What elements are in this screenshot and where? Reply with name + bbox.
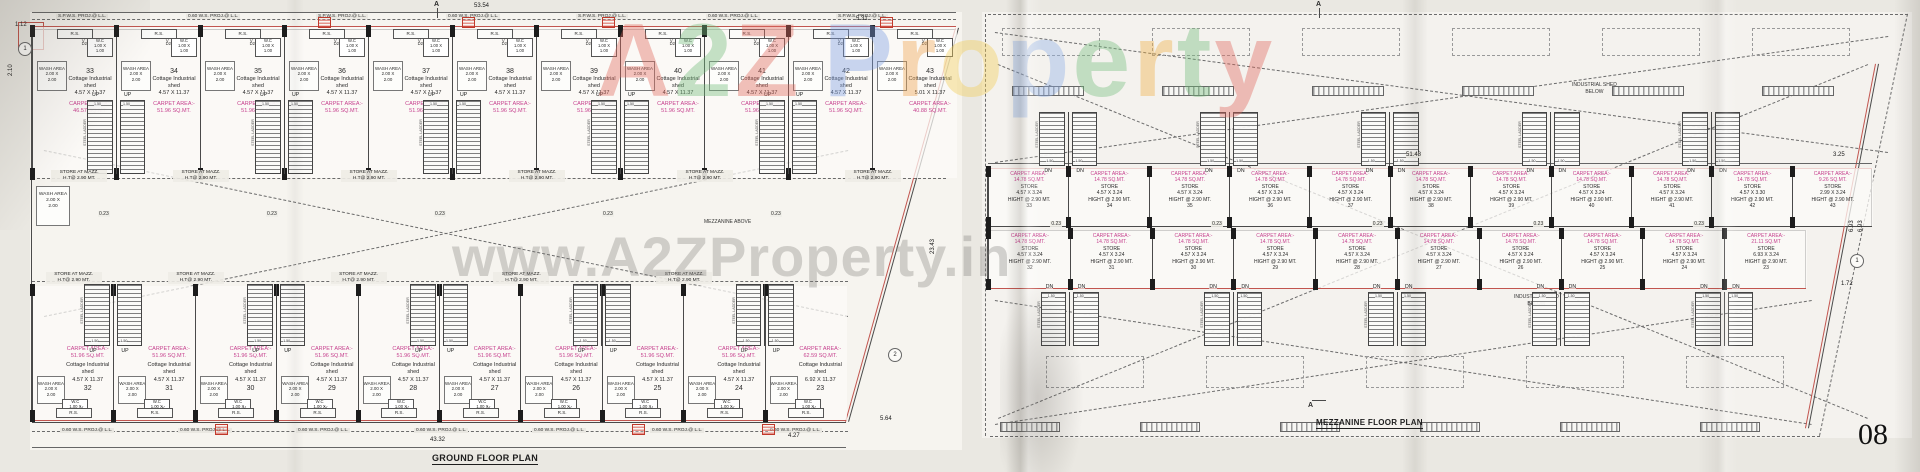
stair-width-dim: 1.50	[766, 102, 773, 106]
stair-direction-label: UP	[92, 92, 99, 98]
grid-marker-2: 2	[888, 348, 902, 362]
stair-width-dim: 1.50	[262, 102, 269, 106]
mezzanine-store-cell: CARPET AREA:- 14.78 SQ.MT. STORE 4.57 X …	[1631, 168, 1712, 226]
stair-flight	[591, 100, 617, 174]
stair-width-dim: 1.50	[446, 339, 453, 343]
wash-size: 2.00	[794, 77, 822, 82]
ventilator-mark: V	[813, 405, 816, 410]
stair-width-dim: 1.50	[291, 102, 298, 106]
dashed-line	[32, 178, 946, 179]
unit-type: shed	[796, 369, 845, 376]
steel-ladder-label: STEEL LADDER	[243, 297, 247, 324]
wash-area-box: WASH AREA 2.00 X 2.00	[205, 61, 235, 91]
stair-width-dim: 1.50	[580, 339, 587, 343]
stair-direction-label: DN	[1559, 168, 1567, 174]
stair-divider	[116, 100, 117, 174]
store-text: CARPET AREA:- 14.78 SQ.MT. STORE 4.57 X …	[1153, 233, 1235, 271]
dim-total-bottom: 43.32	[430, 437, 445, 443]
stair-direction-label: DN	[1700, 284, 1708, 290]
unit-type: Cottage Industrial	[226, 362, 275, 369]
carpet-area-label: CARPET AREA:-	[389, 346, 438, 353]
stair-direction-label: DN	[1044, 168, 1052, 174]
stair-flight	[1522, 112, 1548, 166]
ventilator-mark: V	[406, 405, 409, 410]
unit-number: 27	[1398, 265, 1480, 271]
steel-ladder-label: STEEL LADDER	[1691, 301, 1695, 328]
stair-direction-label: DN	[1209, 284, 1217, 290]
unit-type: Cottage Industrial	[821, 76, 871, 83]
unit-number: 43	[1793, 203, 1873, 209]
roof-outline-dashed	[1752, 28, 1850, 56]
unit-text: 42 Cottage Industrial shed 4.57 X 11.37 …	[821, 67, 871, 115]
roof-outline-dashed	[1302, 28, 1400, 56]
wash-area-box: WASH AREA 2.00 X 2.00	[281, 376, 309, 404]
unit-type: Cottage Industrial	[796, 362, 845, 369]
wash-size: 2.00	[38, 77, 66, 82]
staircase	[1522, 112, 1580, 166]
unit-text: 43 Cottage Industrial shed 5.01 X 11.37 …	[905, 67, 955, 115]
unit-type: shed	[226, 369, 275, 376]
mezzanine-store-cell: CARPET AREA:- 14.78 SQ.MT. STORE 4.57 X …	[1152, 230, 1235, 288]
stair-width-dim: 1.50	[1529, 159, 1536, 163]
carpet-area-value: 51.96 SQ.MT.	[317, 108, 367, 115]
unit-text: 38 Cottage Industrial shed 4.57 X 11.37 …	[485, 67, 535, 115]
wash-area-box: WASH AREA 2.00 X 2.00	[541, 61, 571, 91]
stair-width-dim: 1.50	[1702, 294, 1709, 298]
unit-number: 37	[1310, 203, 1390, 209]
stair-direction-label: UP	[252, 348, 259, 354]
unit-size: 4.57 X 11.37	[470, 377, 519, 384]
stair-flight	[280, 284, 306, 346]
mezzanine-store-cell: CARPET AREA:- 14.78 SQ.MT. STORE 4.57 X …	[1309, 168, 1390, 226]
stair-width-dim: 1.50	[1397, 159, 1404, 163]
stair-direction-label: DN	[1076, 168, 1084, 174]
column-gap-dim: 0.23	[434, 211, 446, 217]
wash-area-box: WASH AREA 2.00 X 2.00	[457, 61, 487, 91]
unit-type: Cottage Industrial	[485, 76, 535, 83]
carpet-area-value: 51.96 SQ.MT.	[551, 353, 600, 360]
steel-ladder-label: STEEL LADDER	[1364, 301, 1368, 328]
stair-flight	[423, 100, 449, 174]
wash-area-box: WASH AREA 2.00 X 2.00	[37, 376, 65, 404]
note-line: BELOW	[1572, 89, 1617, 96]
mezzanine-store-cell: CARPET AREA:- 14.78 SQ.MT. STORE 4.57 X …	[1149, 168, 1230, 226]
mezzanine-store-cell: CARPET AREA:- 14.78 SQ.MT. STORE 4.57 X …	[1711, 168, 1792, 226]
stair-divider	[1711, 112, 1712, 166]
unit-type: Cottage Industrial	[389, 362, 438, 369]
wash-area-box: WASH AREA 2.00 X 2.00	[625, 61, 655, 91]
wash-size: 2.00	[445, 392, 471, 397]
staircase	[759, 100, 817, 174]
stair-divider	[284, 100, 285, 174]
wash-area-box: WASH AREA 2.00 X 2.00	[121, 61, 151, 91]
stair-direction-label: UP	[460, 92, 467, 98]
unit-type: shed	[144, 369, 193, 376]
unit-number: 36	[1230, 203, 1310, 209]
red-stamp-icon	[215, 424, 228, 435]
wash-size: 2.00	[771, 392, 797, 397]
stair-width-dim: 1.50	[1689, 159, 1696, 163]
unit-text: CARPET AREA:- 51.96 SQ.MT. Cottage Indus…	[551, 346, 600, 393]
wash-area-box: WASH AREA 2.00 X 2.00	[363, 376, 391, 404]
stair-direction-label: UP	[578, 348, 585, 354]
stair-flight	[768, 284, 794, 346]
dim-mezz-total: 51.48	[1406, 152, 1421, 158]
carpet-area-value: 51.96 SQ.MT.	[389, 353, 438, 360]
unit-text: CARPET AREA:- 62.59 SQ.MT. Cottage Indus…	[796, 346, 845, 393]
unit-text: CARPET AREA:- 51.96 SQ.MT. Cottage Indus…	[226, 346, 275, 393]
stair-flight	[1072, 112, 1098, 166]
unit-type: Cottage Industrial	[233, 76, 283, 83]
unit-type: Cottage Industrial	[470, 362, 519, 369]
store-text: CARPET AREA:- 14.78 SQ.MT. STORE 4.57 X …	[1391, 171, 1471, 209]
unit-type: shed	[233, 83, 283, 90]
rolling-shutter-label: R.S.	[544, 408, 580, 418]
unit-number: 29	[1234, 265, 1316, 271]
unit-type: shed	[737, 83, 787, 90]
ventilator-mark: V	[487, 405, 490, 410]
unit-size: 4.57 X 11.37	[144, 377, 193, 384]
stair-flight	[255, 100, 281, 174]
wc-box: W.C 1.00 X 1.00	[255, 38, 281, 57]
stair-flight	[1695, 292, 1721, 346]
stair-flight	[117, 284, 143, 346]
unit-number: 31	[1071, 265, 1153, 271]
wc-box: W.C 1.00 X 1.00	[339, 38, 365, 57]
mezzanine-store-cell: CARPET AREA:- 14.78 SQ.MT. STORE 4.57 X …	[1479, 230, 1562, 288]
stair-direction-label: DN	[1687, 168, 1695, 174]
unit-type: shed	[149, 83, 199, 90]
store-text: CARPET AREA:- 14.78 SQ.MT. STORE 4.57 X …	[989, 233, 1071, 271]
unit-number: 35	[1150, 203, 1230, 209]
stair-divider	[1560, 292, 1561, 346]
edge-projection-label: 0.60 W.S. PROJ.@ L.L.	[532, 428, 586, 433]
mezzanine-store-cell: CARPET AREA:- 14.78 SQ.MT. STORE 4.57 X …	[1229, 168, 1310, 226]
carpet-area-value: 51.96 SQ.MT.	[63, 353, 112, 360]
store-text: CARPET AREA:- 14.78 SQ.MT. STORE 4.57 X …	[989, 171, 1069, 209]
red-stamp-icon	[602, 17, 615, 28]
dim-top-right: 5.31	[856, 16, 868, 22]
unit-number: 40	[653, 67, 703, 76]
unit-number: 33	[989, 203, 1069, 209]
ground-floor-unit-cell: R.S. V W.C 1.00 X 1.00 D2 WASH AREA 2.00…	[872, 27, 957, 178]
stair-direction-label: UP	[764, 92, 771, 98]
stair-flight	[624, 100, 650, 174]
steel-ladder-label: STEEL LADDER	[1678, 121, 1682, 148]
unit-size: 4.57 X 11.37	[714, 377, 763, 384]
note-line: H.T@ 2.90 MT.	[678, 176, 732, 182]
unit-size: 4.57 X 11.37	[633, 377, 682, 384]
staircase	[410, 284, 468, 346]
red-stamp-icon	[318, 17, 331, 28]
dim-right-height: 23.43	[930, 239, 936, 254]
stair-width-dim: 1.50	[91, 339, 98, 343]
store-text: CARPET AREA:- 14.78 SQ.MT. STORE 4.57 X …	[1480, 233, 1562, 271]
wash-size: 2.00	[206, 77, 234, 82]
louver-strip	[1312, 86, 1384, 96]
store-text: CARPET AREA:- 14.78 SQ.MT. STORE 4.57 X …	[1230, 171, 1310, 209]
wash-area-box: WASH AREA 2.00 X 2.00	[37, 61, 67, 91]
stair-flight	[1728, 292, 1754, 346]
staircase	[423, 100, 481, 174]
note-line: H.T@ 2.90 MT.	[657, 278, 711, 284]
stair-flight	[1564, 292, 1590, 346]
dim-total-width: 53.54	[474, 3, 489, 9]
stair-width-dim: 1.50	[120, 339, 127, 343]
stair-width-dim: 1.50	[123, 102, 130, 106]
unit-number: 39	[569, 67, 619, 76]
store-at-mezzanine-note: STORE AT MAZZ.H.T@ 2.90 MT.	[173, 170, 229, 182]
carpet-area-value: 51.96 SQ.MT.	[144, 353, 193, 360]
unit-text: 36 Cottage Industrial shed 4.57 X 11.37 …	[317, 67, 367, 115]
carpet-area-value: 51.96 SQ.MT.	[307, 353, 356, 360]
stair-direction-label: DN	[1569, 284, 1577, 290]
steel-ladder-label: STEEL LADDER	[1518, 121, 1522, 148]
stair-flight	[1715, 112, 1741, 166]
unit-number: 31	[144, 384, 193, 393]
staircase	[84, 284, 142, 346]
store-text: CARPET AREA:- 14.78 SQ.MT. STORE 4.57 X …	[1552, 171, 1632, 209]
unit-text: CARPET AREA:- 51.96 SQ.MT. Cottage Indus…	[307, 346, 356, 393]
stair-direction-label: DN	[1405, 284, 1413, 290]
staircase	[1532, 292, 1590, 346]
unit-number: 34	[1069, 203, 1149, 209]
red-stamp-icon	[762, 424, 775, 435]
column-gap-dim: 0.23	[1372, 221, 1384, 227]
wash-area-box: WASH AREA 2.00 X 2.00	[770, 376, 798, 404]
column-gap-dim: 0.23	[1050, 221, 1062, 227]
dim-mezz-right-top: 3.25	[1833, 152, 1845, 158]
unit-number: 26	[551, 384, 600, 393]
store-text: CARPET AREA:- 14.78 SQ.MT. STORE 4.57 X …	[1712, 171, 1792, 209]
section-marker-a: A	[434, 1, 439, 8]
unit-type: Cottage Industrial	[551, 362, 600, 369]
stair-width-dim: 1.50	[1240, 294, 1247, 298]
carpet-area-value: 51.96 SQ.MT.	[226, 353, 275, 360]
unit-text: CARPET AREA:- 51.96 SQ.MT. Cottage Indus…	[633, 346, 682, 393]
column-gap-dim: 0.23	[266, 211, 278, 217]
unit-type: Cottage Industrial	[65, 76, 115, 83]
wc-box: W.C 1.00 X 1.00	[927, 38, 953, 57]
stair-flight	[1237, 292, 1263, 346]
staircase	[1039, 112, 1097, 166]
unit-type: shed	[307, 369, 356, 376]
edge-projection-label: 0.60 W.S. PROJ.@ L.L.	[706, 14, 760, 19]
mezzanine-store-cell: CARPET AREA:- 14.78 SQ.MT. STORE 4.57 X …	[1068, 168, 1149, 226]
stair-flight	[288, 100, 314, 174]
wash-size: 2.00	[626, 77, 654, 82]
stair-width-dim: 1.50	[598, 102, 605, 106]
stair-direction-label: UP	[796, 92, 803, 98]
unit-size: 4.57 X 11.37	[65, 90, 115, 97]
dim-mezz-right-h2: 6.93	[1858, 220, 1864, 232]
wash-area-box: WASH AREA 2.00 X 2.00	[525, 376, 553, 404]
staircase	[255, 100, 313, 174]
stair-width-dim: 1.50	[609, 339, 616, 343]
staircase	[1204, 292, 1262, 346]
carpet-area-value: 51.96 SQ.MT.	[149, 108, 199, 115]
note-line: H.T@ 2.90 MT.	[494, 278, 548, 284]
stair-direction-label: DN	[1732, 284, 1740, 290]
wash-size: 2.00	[878, 77, 906, 82]
stair-width-dim: 1.50	[94, 102, 101, 106]
unit-size: 4.57 X 11.37	[233, 90, 283, 97]
unit-size: 6.92 X 11.37	[796, 377, 845, 384]
stair-divider	[620, 100, 621, 174]
edge-projection-label: 0.60 W.S. PROJ.@ L.L.	[60, 428, 114, 433]
unit-number: 40	[1552, 203, 1632, 209]
staircase	[1682, 112, 1740, 166]
louver-strip	[1012, 86, 1084, 96]
carpet-area-value: 51.96 SQ.MT.	[821, 108, 871, 115]
rolling-shutter-label: R.S.	[463, 408, 499, 418]
wash-area-box: WASH AREA 2.00 X 2.00	[200, 376, 228, 404]
mezzanine-store-cell: CARPET AREA:- 14.78 SQ.MT. STORE 4.57 X …	[1070, 230, 1153, 288]
wash-size: 2.00	[542, 77, 570, 82]
stair-direction-label: DN	[1237, 168, 1245, 174]
wc-size: 1.00	[928, 49, 952, 54]
rolling-shutter-label: R.S.	[707, 408, 743, 418]
carpet-area-label: CARPET AREA:-	[821, 101, 871, 108]
unit-size: 4.57 X 11.37	[63, 377, 112, 384]
roof-outline-dashed	[1686, 356, 1784, 388]
wc-size: 1.00	[760, 49, 784, 54]
dim-bottom-offset: 4.27	[788, 433, 800, 439]
wc-box: W.C 1.00 X 1.00	[171, 38, 197, 57]
stair-width-dim: 1.50	[1375, 294, 1382, 298]
store-at-mezzanine-note: STORE AT MAZZ.H.T@ 2.90 MT.	[493, 272, 549, 284]
wash-area-box: WASH AREA 2.00 X 2.00	[877, 61, 907, 91]
ventilator-mark: V	[324, 405, 327, 410]
dashed-line	[990, 436, 1820, 437]
steel-ladder-label: STEEL LADDER	[732, 297, 736, 324]
steel-ladder-label: STEEL LADDER	[83, 119, 87, 146]
wash-size: 2.00	[290, 77, 318, 82]
stair-direction-label: DN	[1205, 168, 1213, 174]
carpet-area-label: CARPET AREA:-	[307, 346, 356, 353]
edge-projection-label: 0.60 W.S. PROJ.@ L.L.	[650, 428, 704, 433]
ventilator-mark: V	[80, 405, 83, 410]
store-at-mezzanine-note: STORE AT MAZZ.H.T@ 2.90 MT.	[51, 170, 107, 182]
carpet-area-value: 51.96 SQ.MT.	[653, 108, 703, 115]
stair-flight	[573, 284, 599, 346]
door-label: D2	[166, 41, 171, 46]
staircase	[1041, 292, 1099, 346]
stair-flight	[605, 284, 631, 346]
unit-number: 30	[1153, 265, 1235, 271]
store-text: CARPET AREA:- 14.78 SQ.MT. STORE 4.57 X …	[1316, 233, 1398, 271]
unit-number: 41	[1632, 203, 1712, 209]
wash-area-box: WASH AREA 2.00 X 2.00	[118, 376, 146, 404]
unit-type: shed	[821, 83, 871, 90]
unit-type: Cottage Industrial	[317, 76, 367, 83]
stair-direction-label: UP	[292, 92, 299, 98]
stair-width-dim: 1.50	[1731, 294, 1738, 298]
unit-type: shed	[389, 369, 438, 376]
section-marker-a: A	[1308, 402, 1313, 409]
note-line: H.T@ 2.90 MT.	[510, 176, 564, 182]
wash-area-box: WASH AREA 2.00 X 2.00	[688, 376, 716, 404]
door-label: D2	[418, 41, 423, 46]
unit-type: shed	[63, 369, 112, 376]
wash-area-box: WASH AREA 2.00 X 2.00	[289, 61, 319, 91]
wc-size: 1.00	[592, 49, 616, 54]
stair-flight	[410, 284, 436, 346]
steel-ladder-label: STEEL LADDER	[755, 119, 759, 146]
stair-direction-label: UP	[89, 348, 96, 354]
unit-size: 4.57 X 11.37	[551, 377, 600, 384]
unit-number: 28	[1316, 265, 1398, 271]
stair-flight	[1204, 292, 1230, 346]
staircase	[1695, 292, 1753, 346]
unit-text: CARPET AREA:- 51.96 SQ.MT. Cottage Indus…	[470, 346, 519, 393]
note-line: H.T@ 2.90 MT.	[52, 176, 106, 182]
industrial-shed-below-note: INDUSTRIAL SHED BELOW	[1572, 82, 1617, 95]
section-marker-tick	[437, 8, 438, 18]
steel-ladder-label: STEEL LADDER	[587, 119, 591, 146]
wash-size: 2.00	[689, 392, 715, 397]
unit-type: shed	[317, 83, 367, 90]
ground-floor-plan-title: GROUND FLOOR PLAN	[432, 453, 538, 465]
store-at-mezzanine-note: STORE AT MAZZ.H.T@ 2.90 MT.	[677, 170, 733, 182]
stair-flight	[1554, 112, 1580, 166]
unit-number: 23	[796, 384, 845, 393]
mezzanine-store-cell: CARPET AREA:- 21.11 SQ.MT STORE 6.93 X 3…	[1724, 230, 1807, 288]
unit-number: 32	[989, 265, 1071, 271]
store-text: CARPET AREA:- 21.11 SQ.MT STORE 6.93 X 3…	[1725, 233, 1807, 271]
door-label: D2	[922, 41, 927, 46]
stair-divider	[1068, 112, 1069, 166]
staircase	[591, 100, 649, 174]
carpet-area-label: CARPET AREA:-	[226, 346, 275, 353]
stair-width-dim: 1.50	[1718, 159, 1725, 163]
ventilator-mark: V	[650, 405, 653, 410]
stair-width-dim: 1.50	[283, 339, 290, 343]
steel-ladder-label: STEEL LADDER	[80, 297, 84, 324]
red-stamp-icon	[880, 17, 893, 28]
grid-marker-1: 1	[18, 42, 32, 56]
unit-type: Cottage Industrial	[905, 76, 955, 83]
red-stamp-icon	[632, 424, 645, 435]
stair-direction-label: UP	[773, 348, 780, 354]
column-gap-dim: 0.23	[1693, 221, 1705, 227]
stair-direction-label: UP	[284, 348, 291, 354]
louver-strip	[1162, 86, 1234, 96]
unit-size: 4.57 X 11.37	[226, 377, 275, 384]
wc-box: W.C 1.00 X 1.00	[87, 38, 113, 57]
carpet-area-value: 51.96 SQ.MT.	[633, 353, 682, 360]
carpet-area-label: CARPET AREA:-	[317, 101, 367, 108]
stair-width-dim: 1.50	[1368, 159, 1375, 163]
mezzanine-store-cell: CARPET AREA:- 14.78 SQ.MT. STORE 4.57 X …	[1642, 230, 1725, 288]
stair-divider	[1389, 112, 1390, 166]
roof-outline-dashed	[1046, 356, 1144, 388]
carpet-area-label: CARPET AREA:-	[485, 101, 535, 108]
unit-type: Cottage Industrial	[633, 362, 682, 369]
store-at-mezzanine-note: STORE AT MAZZ.H.T@ 2.90 MT.	[168, 272, 224, 284]
wash-area-box: WASH AREA 2.00 X 2.00	[607, 376, 635, 404]
store-text: CARPET AREA:- 14.78 SQ.MT. STORE 4.57 X …	[1398, 233, 1480, 271]
roof-outline-dashed	[1452, 28, 1550, 56]
stair-direction-label: UP	[596, 92, 603, 98]
unit-size: 4.57 X 11.37	[569, 90, 619, 97]
stair-flight	[1039, 112, 1065, 166]
wash-size: 2.00	[119, 392, 145, 397]
unit-number: 27	[470, 384, 519, 393]
roof-outline-dashed	[1366, 356, 1464, 388]
unit-type: shed	[569, 83, 619, 90]
wc-size: 1.00	[844, 49, 868, 54]
